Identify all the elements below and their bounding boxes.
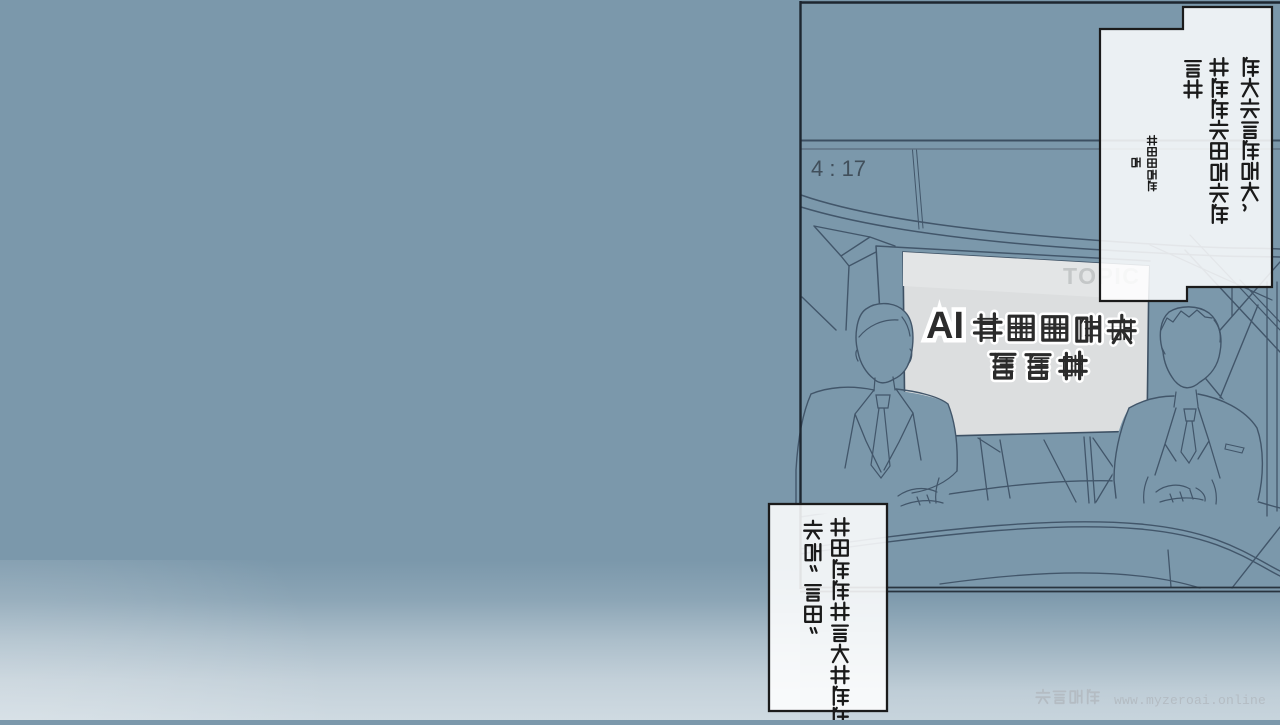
svg-text:www.myzeroai.online: www.myzeroai.online (1114, 693, 1266, 708)
svg-text:4 : 17: 4 : 17 (811, 156, 866, 181)
svg-text:AI: AI (926, 305, 964, 347)
